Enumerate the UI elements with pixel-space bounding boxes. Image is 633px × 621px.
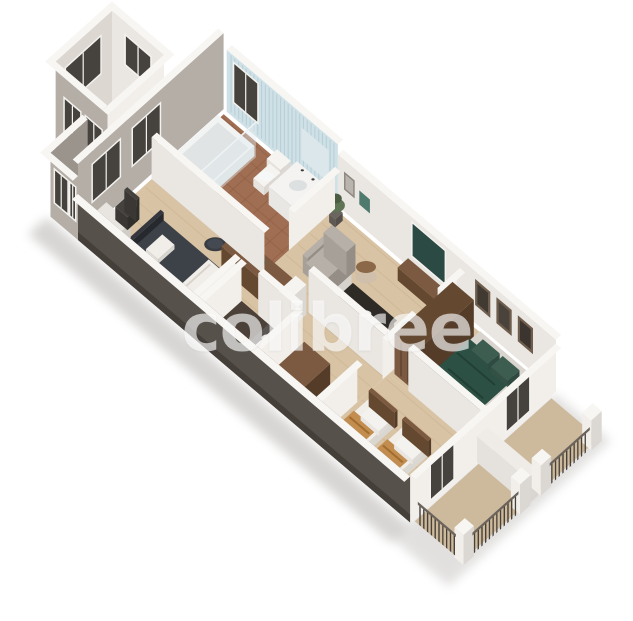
apartment-model — [28, 1, 611, 586]
floorplan-3d-render — [0, 0, 633, 621]
floorplan-screenshot: colibree — [0, 0, 633, 621]
